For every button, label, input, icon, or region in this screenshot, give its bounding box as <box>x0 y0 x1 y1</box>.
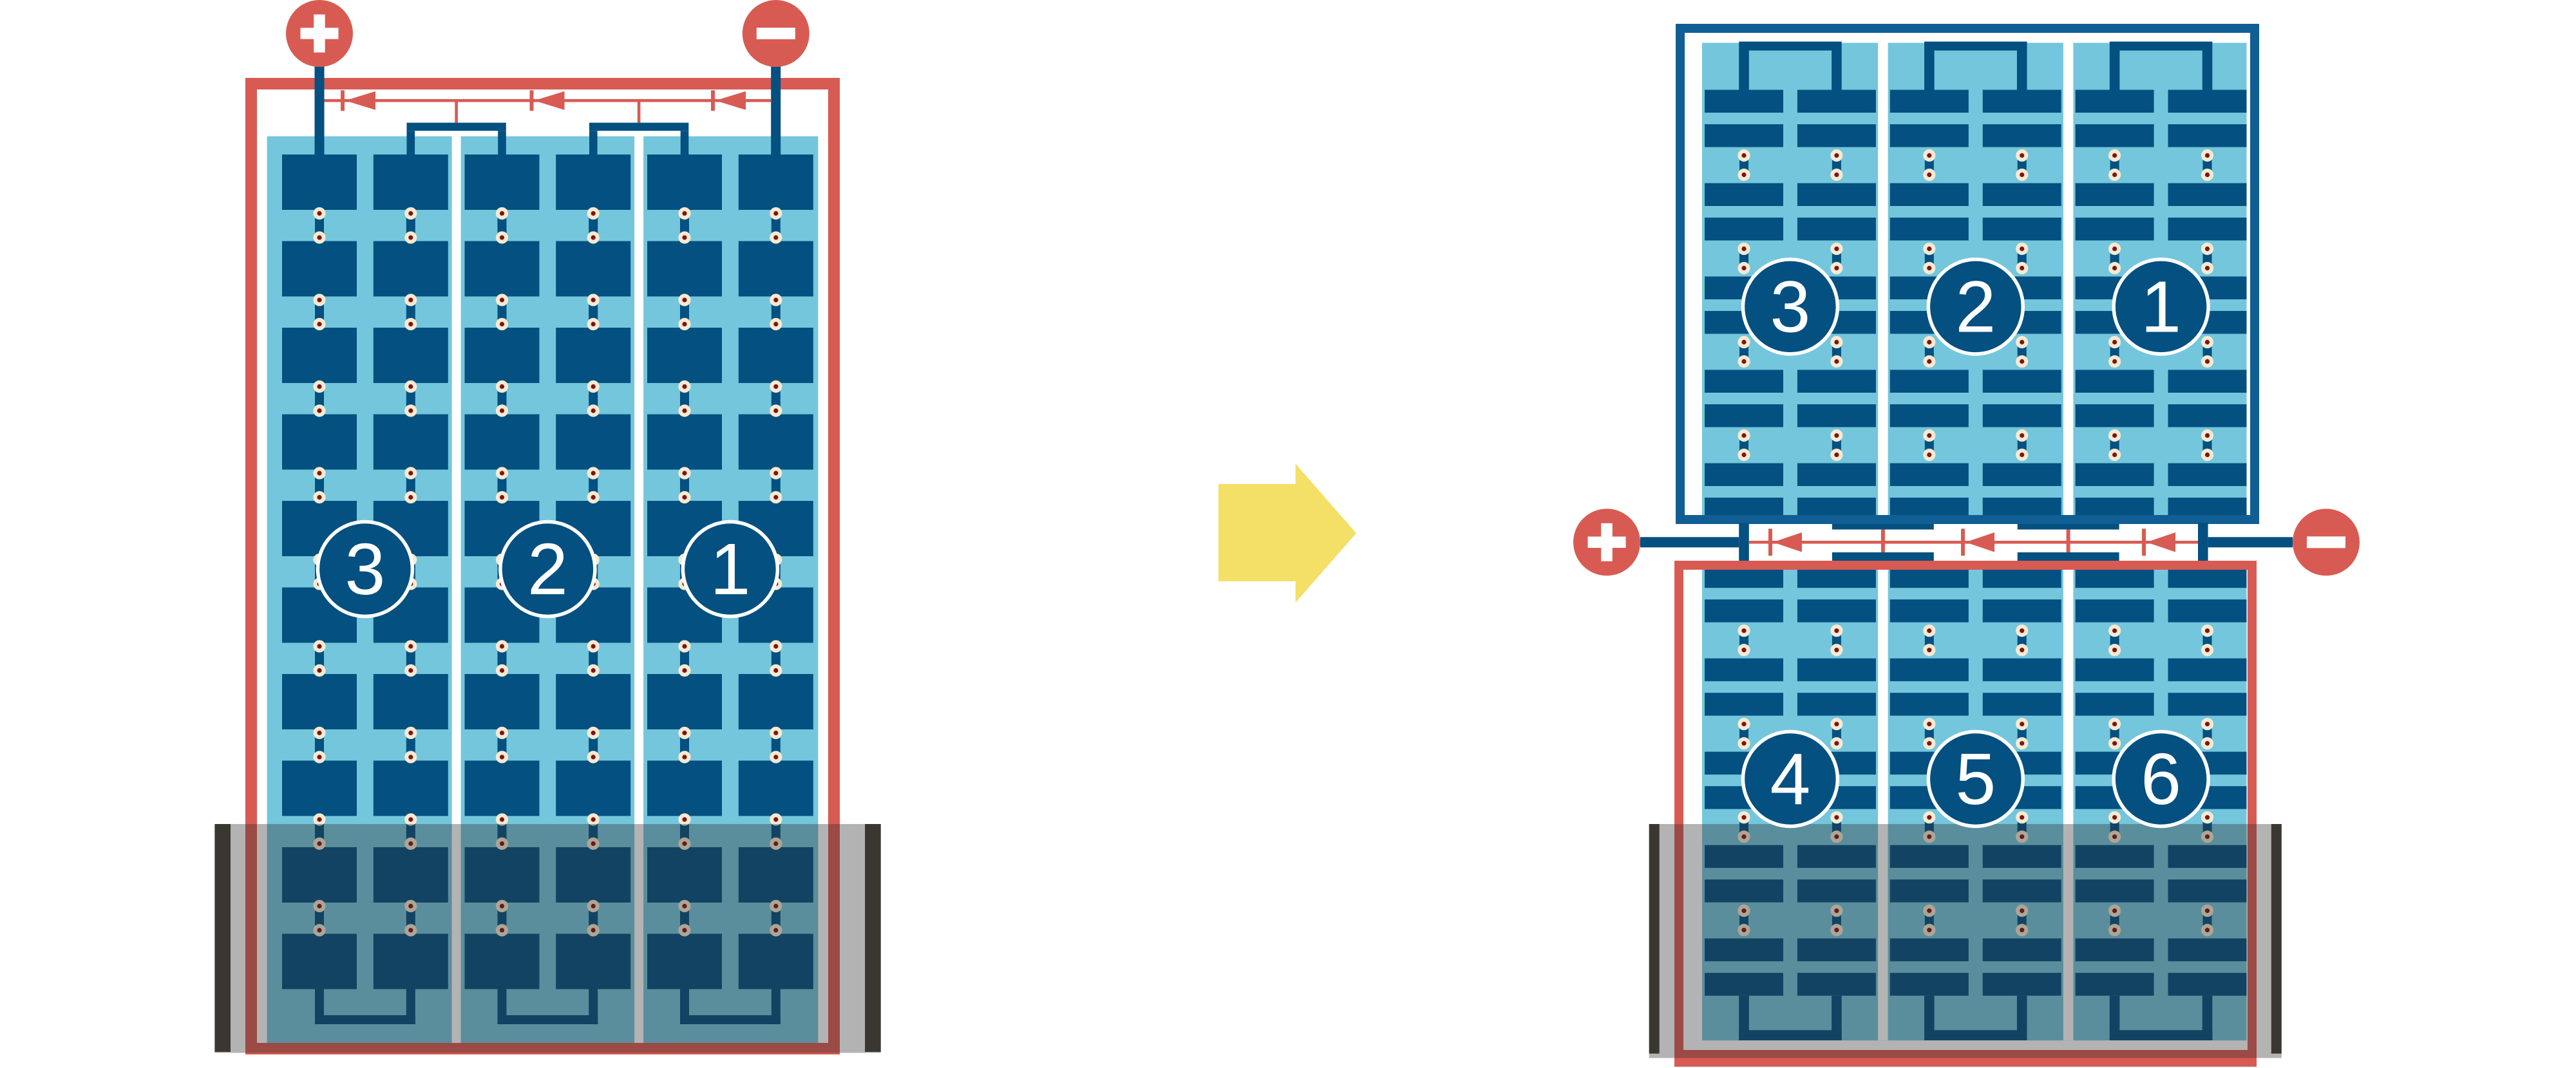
svg-text:6: 6 <box>2141 738 2181 820</box>
svg-text:4: 4 <box>1770 738 1810 820</box>
svg-text:5: 5 <box>1955 738 1996 820</box>
svg-text:2: 2 <box>527 529 568 610</box>
svg-text:3: 3 <box>345 529 385 610</box>
svg-text:1: 1 <box>710 529 750 610</box>
svg-text:3: 3 <box>1770 266 1810 347</box>
svg-text:2: 2 <box>1955 266 1996 347</box>
svg-text:1: 1 <box>2141 266 2181 347</box>
